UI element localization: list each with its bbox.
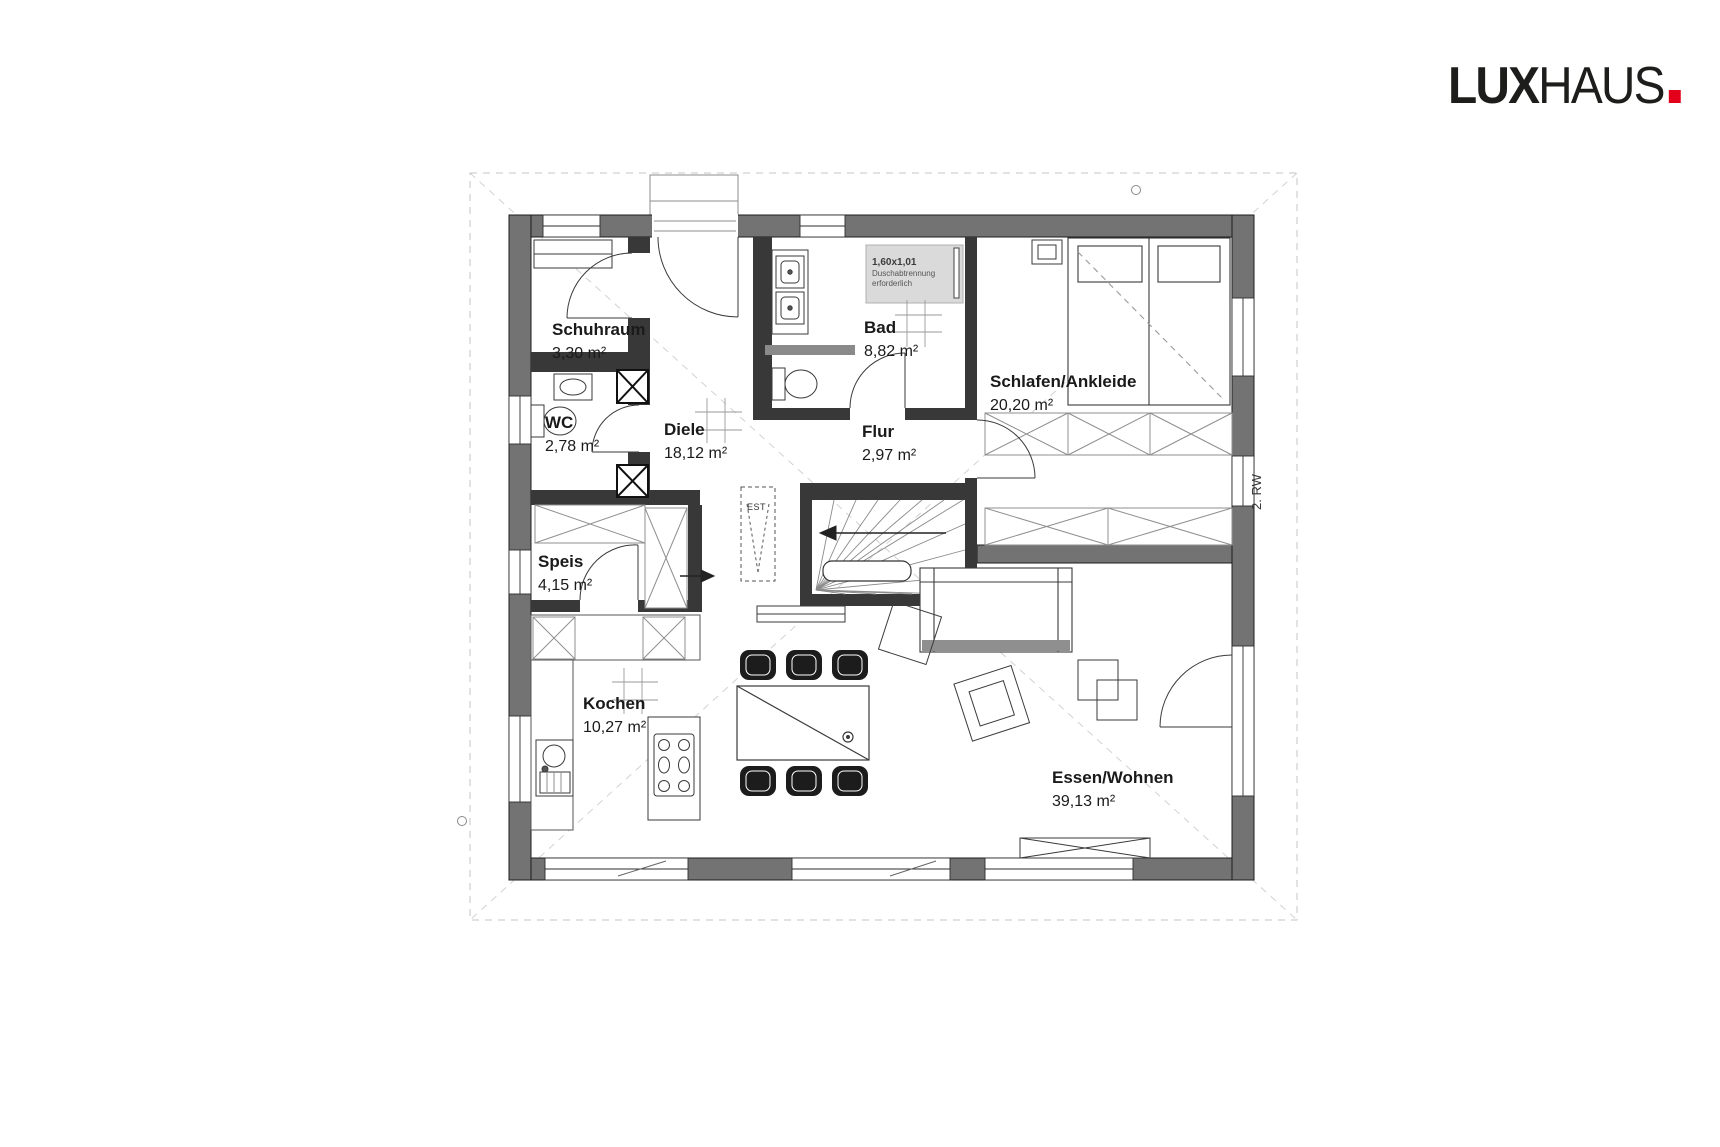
kitchen-island-cooktop xyxy=(648,717,700,820)
sofa xyxy=(920,568,1072,652)
dining-table xyxy=(737,686,869,760)
logo-text-haus: HAUS xyxy=(1538,56,1664,116)
kitchen-sink xyxy=(536,740,573,796)
logo-red-dot-icon xyxy=(1669,90,1681,103)
shaft-icon xyxy=(617,370,648,497)
stair-handrail xyxy=(823,561,911,581)
wardrobes xyxy=(985,413,1232,545)
room-label-speis: Speis4,15 m² xyxy=(538,550,592,598)
room-label-schlafen-ankleide: Schlafen/Ankleide20,20 m² xyxy=(990,370,1136,418)
escape-route-label: 2. RW xyxy=(1249,474,1264,510)
est-label: EST xyxy=(747,502,766,512)
stair-radiator xyxy=(757,606,845,622)
room-label-schuhraum: Schuhraum3,30 m² xyxy=(552,318,646,366)
room-label-flur: Flur2,97 m² xyxy=(862,420,916,468)
room-label-diele: Diele18,12 m² xyxy=(664,418,727,466)
logo-text-lux: LUX xyxy=(1448,56,1538,116)
nightstand xyxy=(1032,240,1062,264)
room-label-essen-wohnen: Essen/Wohnen39,13 m² xyxy=(1052,766,1174,814)
armchair xyxy=(954,666,1030,742)
bathroom-fixtures xyxy=(772,250,817,400)
room-label-kochen: Kochen10,27 m² xyxy=(583,692,646,740)
floor-plan-drawing xyxy=(0,0,1720,1147)
shower-note: 1,60x1,01 Duschabtrennung erforderlich xyxy=(872,256,935,289)
side-tables xyxy=(1078,660,1137,720)
room-label-wc: WC2,78 m² xyxy=(545,411,599,459)
shoe-cabinet xyxy=(534,240,612,268)
entrance-opening xyxy=(652,214,738,238)
room-label-bad: Bad8,82 m² xyxy=(864,316,918,364)
page: Schuhraum3,30 m² WC2,78 m² Diele18,12 m²… xyxy=(0,0,1720,1147)
luxhaus-logo: LUXHAUS xyxy=(1448,56,1681,116)
tv-sideboard xyxy=(1020,838,1150,858)
